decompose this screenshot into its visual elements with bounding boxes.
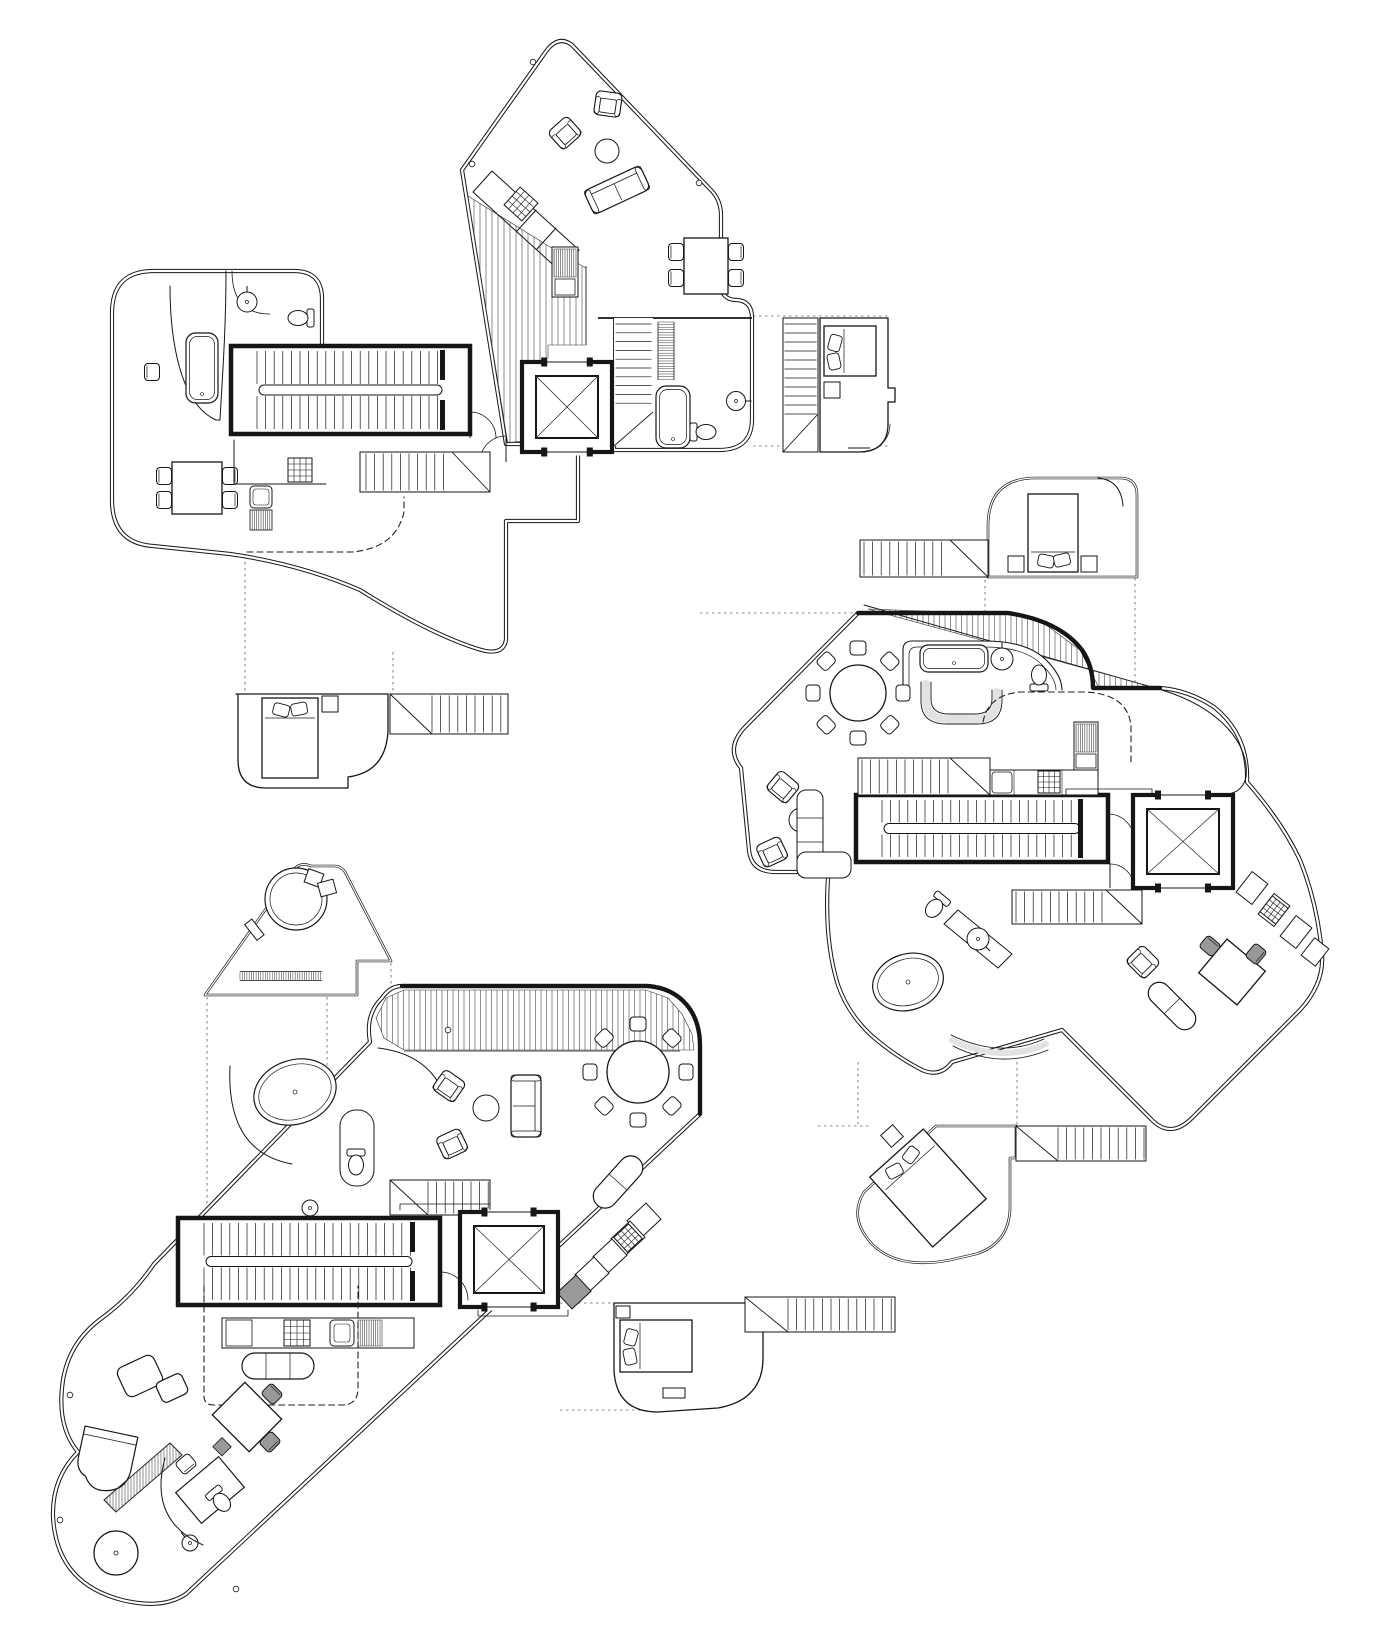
kitchen-sink	[992, 772, 1012, 793]
oven-door	[555, 279, 575, 295]
bathroom-stair	[614, 318, 653, 446]
nightstand	[1008, 556, 1024, 572]
desk-chair	[145, 364, 160, 381]
floor-plan-drawing	[0, 0, 1400, 1638]
dining-table	[172, 462, 222, 514]
bathtub	[920, 645, 988, 672]
bedroom-stair	[860, 540, 988, 577]
toilet	[690, 423, 716, 441]
elevator	[1133, 791, 1233, 893]
round-table-center	[114, 1551, 118, 1555]
nightstand	[1081, 556, 1097, 572]
toilet	[347, 1149, 365, 1175]
bed	[824, 326, 876, 376]
bedroom-stair	[1016, 1126, 1146, 1161]
sofa	[511, 1075, 541, 1137]
wall-fixture	[233, 1586, 239, 1592]
nightstand	[616, 1306, 630, 1318]
cooktop	[284, 1320, 310, 1346]
elevator	[460, 1208, 558, 1312]
fridge-door	[1076, 754, 1096, 768]
dining-chair	[729, 270, 744, 287]
main-stair-core	[856, 795, 1108, 862]
cabinet	[226, 1320, 252, 1346]
nightstand	[322, 696, 338, 712]
bedroom-stair	[390, 694, 508, 734]
bathtub	[186, 333, 218, 403]
dining-chair	[157, 492, 172, 509]
main-stair-core	[178, 1218, 440, 1305]
corner-sofa	[797, 852, 851, 878]
armchair	[593, 90, 622, 117]
middle-level-plan	[734, 478, 1329, 1263]
kitchen-sink-basin	[334, 1324, 350, 1342]
coffee-table	[473, 1095, 499, 1121]
hall-stair	[858, 758, 990, 795]
bedroom-stair	[745, 1297, 895, 1332]
floor-plan-sheet	[0, 0, 1400, 1638]
lower-level-plan	[53, 864, 895, 1603]
cooktop	[1038, 771, 1060, 793]
toilet	[288, 309, 314, 327]
bed	[262, 698, 318, 778]
wall-fixture	[696, 180, 702, 186]
wall-fixture	[67, 1392, 73, 1398]
kitchen-island	[242, 1353, 314, 1379]
dining-chair	[157, 468, 172, 485]
guest-stair	[783, 318, 818, 452]
bed	[620, 1320, 692, 1372]
wall-fixture	[530, 59, 536, 65]
toilet	[1030, 665, 1048, 691]
nightstand	[824, 382, 840, 398]
lower-stair	[1012, 890, 1142, 924]
garden-stair	[360, 452, 490, 492]
cooktop	[288, 458, 312, 482]
bathtub	[656, 386, 690, 448]
dining-chair	[729, 244, 744, 261]
kitchen-sink-basin	[253, 489, 269, 505]
vanity-basin	[967, 928, 990, 951]
coffee-table	[595, 139, 619, 163]
bench	[663, 1388, 685, 1398]
elevator	[522, 358, 612, 457]
wall-fixture	[469, 161, 475, 167]
dining-chair	[669, 270, 684, 287]
bed	[1028, 494, 1078, 572]
wall-fixture	[445, 1027, 451, 1033]
upper-level-plan	[112, 41, 895, 788]
dining-chair	[669, 244, 684, 261]
main-stair-core	[231, 346, 470, 434]
dining-chair	[223, 492, 238, 509]
dining-table	[684, 238, 728, 294]
door-swing	[470, 412, 496, 438]
hall-stair	[390, 1180, 490, 1215]
wall-fixture	[57, 1517, 63, 1523]
nightstand	[881, 1125, 904, 1148]
dining-chair	[223, 468, 238, 485]
